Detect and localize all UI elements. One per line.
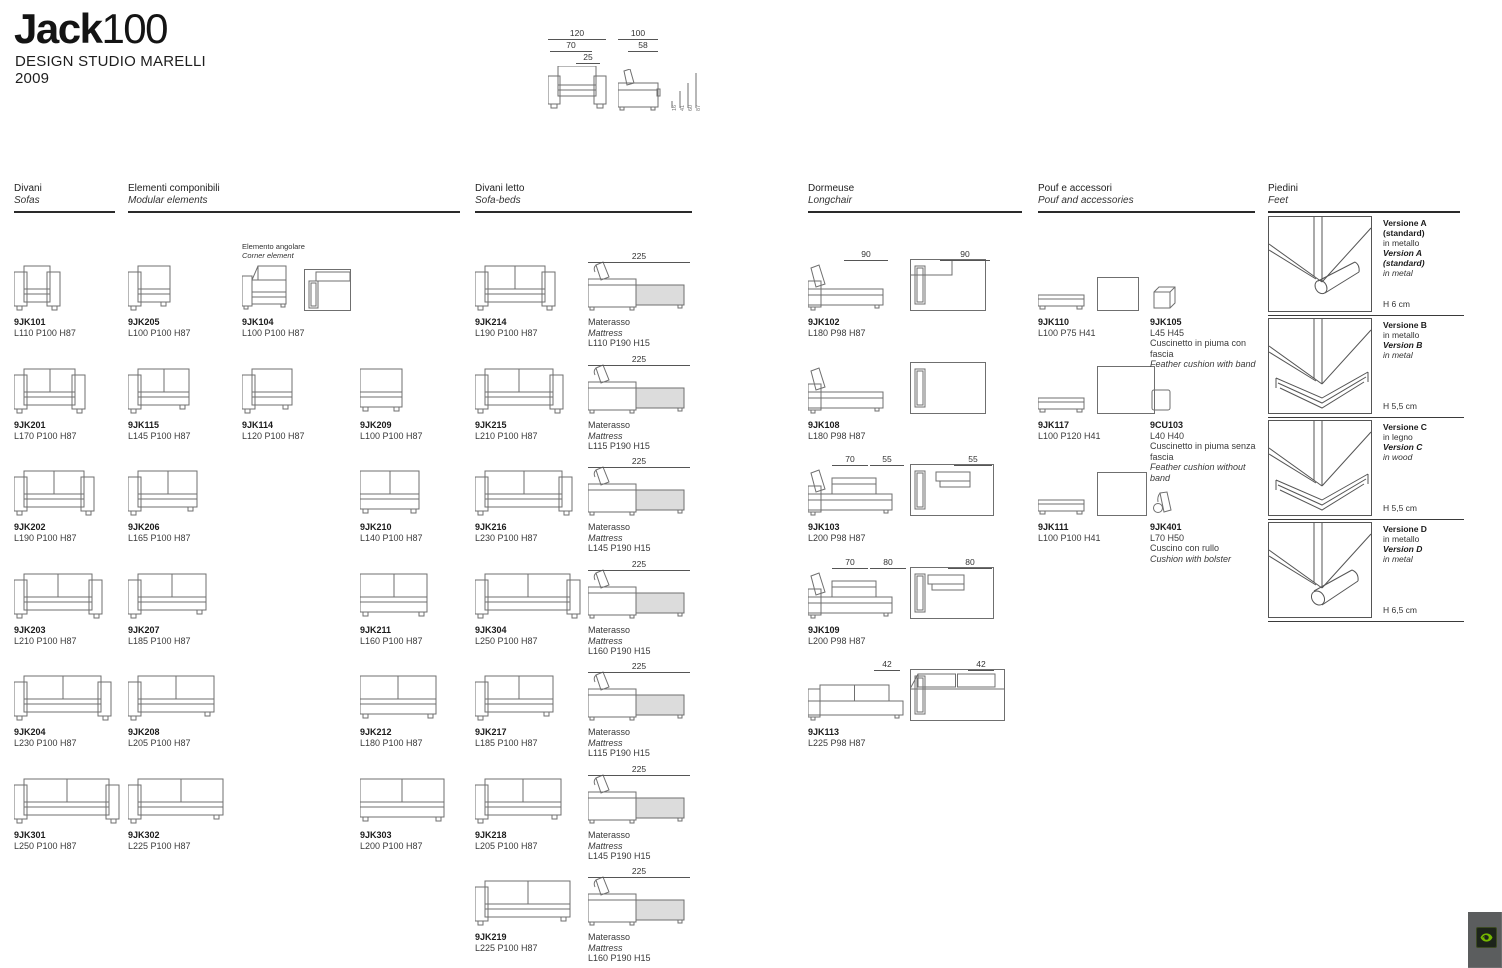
item-9JK206: 9JK206L165 P100 H87 xyxy=(128,442,238,543)
sofa-front-drawing xyxy=(242,367,293,414)
item-label: 9JK216L230 P100 H87 xyxy=(475,522,585,543)
item-label: 9JK301L250 P100 H87 xyxy=(14,830,124,851)
catalog-page: Jack100 DESIGN STUDIO MARELLI 2009 12070… xyxy=(0,0,1502,968)
dimension-line: 225 xyxy=(588,866,690,878)
longchair-drawing: 705555 xyxy=(808,442,1000,516)
item-dimensions: L210 P100 H87 xyxy=(475,431,585,442)
furniture-drawing xyxy=(360,545,470,619)
item-code: 9JK104 xyxy=(242,317,354,328)
dimension-line: 120 xyxy=(548,28,606,40)
item-code: 9JK103 xyxy=(808,522,1000,533)
item-label: 9JK110L100 P75 H41 xyxy=(1038,317,1150,338)
item-9JK301: 9JK301L250 P100 H87 xyxy=(14,750,124,851)
item-dimensions: L200 P98 H87 xyxy=(808,533,1000,544)
item-9JK101: 9JK101L110 P100 H87 xyxy=(14,237,124,338)
sofa-bed-drawing: 225 xyxy=(588,647,692,721)
sofa-front-drawing xyxy=(360,367,403,414)
longchair-drawing: 9090 xyxy=(808,237,1000,311)
furniture-drawing xyxy=(128,340,238,414)
mattress-9JK216: 225MaterassoMattressL145 P190 H15 xyxy=(588,442,692,554)
sofa-bed-drawing: 225 xyxy=(588,442,692,516)
dimension-line: 80 xyxy=(870,557,906,569)
item-9JK102: 90909JK102L180 P98 H87 xyxy=(808,237,1000,338)
dimension-line: 55 xyxy=(870,454,904,466)
corner-element-top-drawing xyxy=(304,269,352,311)
sofa-bed-open-drawing xyxy=(588,874,688,926)
item-dimensions: L170 P100 H87 xyxy=(14,431,124,442)
item-9JK214: 9JK214L190 P100 H87 xyxy=(475,237,585,338)
dimension-line: 225 xyxy=(588,251,690,263)
sofa-front-drawing xyxy=(14,264,61,311)
item-code: 9JK115 xyxy=(128,420,238,431)
sofa-front-drawing xyxy=(14,674,112,721)
dimension-line: 58 xyxy=(628,40,658,52)
item-9JK203: 9JK203L210 P100 H87 xyxy=(14,545,124,646)
item-9JK115: 9JK115L145 P100 H87 xyxy=(128,340,238,441)
dimension-line: 90 xyxy=(940,249,990,261)
item-dimensions: L110 P100 H87 xyxy=(14,328,124,339)
item-dimensions: L225 P98 H87 xyxy=(808,738,1000,749)
item-9JK208: 9JK208L205 P100 H87 xyxy=(128,647,238,748)
bolster-cushion-drawing xyxy=(1150,490,1176,516)
item-label: 9JK219L225 P100 H87 xyxy=(475,932,585,953)
furniture-drawing xyxy=(14,750,124,824)
item-label: 9JK109L200 P98 H87 xyxy=(808,625,1000,646)
item-9JK104: Elemento angolareCorner element9JK104L10… xyxy=(242,237,354,338)
item-9JK204: 9JK204L230 P100 H87 xyxy=(14,647,124,748)
item-dimensions: L230 P100 H87 xyxy=(475,533,585,544)
foot-version-row: Versione Bin metalloVersion Bin metalH 5… xyxy=(1268,315,1464,418)
foot-version-row: Versione Din metalloVersion Din metalH 6… xyxy=(1268,519,1464,622)
dimension-line: 225 xyxy=(588,764,690,776)
furniture-drawing xyxy=(128,237,238,311)
item-9JK209: 9JK209L100 P100 H87 xyxy=(360,340,470,441)
mattress-9JK214: 225MaterassoMattressL110 P190 H15 xyxy=(588,237,692,349)
item-9JK212: 9JK212L180 P100 H87 xyxy=(360,647,470,748)
item-label: 9JK208L205 P100 H87 xyxy=(128,727,238,748)
item-code: 9JK113 xyxy=(808,727,1000,738)
foot-version-label: Versione Cin legnoVersion Cin wood xyxy=(1383,422,1463,462)
cushion-cube-drawing xyxy=(1150,284,1178,311)
item-dimensions: L180 P98 H87 xyxy=(808,431,1000,442)
foot-version-drawing xyxy=(1268,522,1372,618)
item-label: 9JK210L140 P100 H87 xyxy=(360,522,470,543)
section-header-sofa-beds: Divani lettoSofa-beds xyxy=(475,183,692,213)
furniture-drawing xyxy=(242,340,354,414)
item-dimensions: L190 P100 H87 xyxy=(14,533,124,544)
item-label: 9JK218L205 P100 H87 xyxy=(475,830,585,851)
item-label: 9JK302L225 P100 H87 xyxy=(128,830,238,851)
item-9JK211: 9JK211L160 P100 H87 xyxy=(360,545,470,646)
item-label: 9JK115L145 P100 H87 xyxy=(128,420,238,441)
item-label: 9JK201L170 P100 H87 xyxy=(14,420,124,441)
longchair-top-drawing xyxy=(910,669,1005,721)
foot-version-drawing xyxy=(1268,216,1372,312)
item-label: 9JK103L200 P98 H87 xyxy=(808,522,1000,543)
furniture-drawing xyxy=(360,442,470,516)
pouf-top-drawing xyxy=(1097,366,1155,414)
sofa-front-drawing xyxy=(360,777,445,824)
svg-text:16: 16 xyxy=(672,105,678,111)
dimension-line: 225 xyxy=(588,661,690,673)
longchair-side-drawing xyxy=(808,261,885,311)
furniture-drawing xyxy=(14,442,124,516)
item-code: 9JK207 xyxy=(128,625,238,636)
item-9JK217: 9JK217L185 P100 H87 xyxy=(475,647,585,748)
item-code: 9JK208 xyxy=(128,727,238,738)
item-dimensions: L100 P100 H41 xyxy=(1038,533,1150,544)
furniture-drawing xyxy=(14,340,124,414)
item-9JK303: 9JK303L200 P100 H87 xyxy=(360,750,470,851)
item-9JK216: 9JK216L230 P100 H87 xyxy=(475,442,585,543)
item-code: 9JK203 xyxy=(14,625,124,636)
dimension-line: 225 xyxy=(588,456,690,468)
item-dimensions: L100 P100 H87 xyxy=(360,431,470,442)
furniture-drawing xyxy=(128,647,238,721)
sofa-front-drawing xyxy=(360,469,420,516)
item-code: 9JK216 xyxy=(475,522,585,533)
sofa-front-drawing xyxy=(475,367,564,414)
item-label: 9JK114L120 P100 H87 xyxy=(242,420,354,441)
sofa-front-drawing xyxy=(475,264,556,311)
dimension-line: 100 xyxy=(618,28,658,40)
sofa-front-drawing xyxy=(475,879,571,926)
item-dimensions: L225 P100 H87 xyxy=(128,841,238,852)
item-label: 9JK204L230 P100 H87 xyxy=(14,727,124,748)
pouf-top-drawing xyxy=(1097,277,1139,311)
item-9JK210: 9JK210L140 P100 H87 xyxy=(360,442,470,543)
dimension-line: 70 xyxy=(832,557,868,569)
svg-text:41: 41 xyxy=(680,105,686,111)
pouf-drawing xyxy=(1038,442,1150,516)
item-code: 9JK219 xyxy=(475,932,585,943)
longchair-drawing: 708080 xyxy=(808,545,1000,619)
item-dimensions: L120 P100 H87 xyxy=(242,431,354,442)
svg-text:60: 60 xyxy=(688,105,694,111)
sofa-front-drawing xyxy=(128,572,207,619)
item-dimensions: L250 P100 H87 xyxy=(14,841,124,852)
item-code: 9JK303 xyxy=(360,830,470,841)
mattress-label: MaterassoMattressL160 P190 H15 xyxy=(588,932,692,964)
sofa-front-drawing xyxy=(475,469,573,516)
longchair-drawing: 4242 xyxy=(808,647,1000,721)
item-9JK205: 9JK205L100 P100 H87 xyxy=(128,237,238,338)
item-label: 9JK202L190 P100 H87 xyxy=(14,522,124,543)
item-label: 9JK401L70 H50Cuscino con rulloCushion wi… xyxy=(1150,522,1260,564)
item-code: 9JK110 xyxy=(1038,317,1150,328)
sofa-front-drawing xyxy=(14,367,86,414)
item-label: 9JK111L100 P100 H41 xyxy=(1038,522,1150,543)
sofa-bed-open-drawing xyxy=(588,669,688,721)
sofa-front-drawing xyxy=(360,572,428,619)
section-header-feet: PiediniFeet xyxy=(1268,183,1460,213)
item-label: 9JK304L250 P100 H87 xyxy=(475,625,585,646)
designer-credit: DESIGN STUDIO MARELLI 2009 xyxy=(15,53,206,87)
furniture-drawing xyxy=(128,545,238,619)
longchair-top-drawing xyxy=(910,259,986,311)
item-label: 9JK203L210 P100 H87 xyxy=(14,625,124,646)
studio-name: DESIGN STUDIO MARELLI xyxy=(15,53,206,70)
item-9JK219: 9JK219L225 P100 H87 xyxy=(475,852,585,953)
foot-version-row: Versione A (standard)in metalloVersion A… xyxy=(1268,213,1464,316)
foot-version-label: Versione A (standard)in metalloVersion A… xyxy=(1383,218,1463,278)
furniture-drawing xyxy=(14,545,124,619)
item-label: 9JK214L190 P100 H87 xyxy=(475,317,585,338)
dimension-line: 42 xyxy=(874,659,900,671)
item-label: 9JK303L200 P100 H87 xyxy=(360,830,470,851)
longchair-side-drawing xyxy=(808,364,885,414)
pouf-drawing xyxy=(1038,340,1150,414)
item-code: 9JK201 xyxy=(14,420,124,431)
item-code: 9JK217 xyxy=(475,727,585,738)
dimension-line: 25 xyxy=(576,52,600,64)
page-title: Jack100 xyxy=(14,6,167,52)
longchair-top-drawing xyxy=(910,464,994,516)
item-dimensions: L185 P100 H87 xyxy=(128,636,238,647)
sofa-front-drawing xyxy=(360,674,437,721)
sofa-bed-open-drawing xyxy=(588,259,688,311)
foot-height: H 6,5 cm xyxy=(1383,605,1417,615)
item-dimensions: L200 P98 H87 xyxy=(808,636,1000,647)
sofa-bed-open-drawing xyxy=(588,464,688,516)
dimension-overview-drawing: 12070251005816416087 xyxy=(546,26,706,110)
item-code: 9JK214 xyxy=(475,317,585,328)
armchair-side-drawing xyxy=(618,69,661,113)
item-dimensions: L100 P100 H87 xyxy=(242,328,354,339)
item-dimensions: L145 P100 H87 xyxy=(128,431,238,442)
item-label: 9JK117L100 P120 H41 xyxy=(1038,420,1150,441)
item-9JK114: 9JK114L120 P100 H87 xyxy=(242,340,354,441)
furniture-drawing xyxy=(475,340,585,414)
item-dimensions: L200 P100 H87 xyxy=(360,841,470,852)
sofa-front-drawing xyxy=(128,264,171,311)
item-label: 9JK205L100 P100 H87 xyxy=(128,317,238,338)
item-code: 9JK108 xyxy=(808,420,1000,431)
foot-version-label: Versione Din metalloVersion Din metal xyxy=(1383,524,1463,564)
sofa-bed-open-drawing xyxy=(588,362,688,414)
item-9JK202: 9JK202L190 P100 H87 xyxy=(14,442,124,543)
furniture-drawing xyxy=(360,340,470,414)
dimension-line: 90 xyxy=(844,249,888,261)
foot-version-label: Versione Bin metalloVersion Bin metal xyxy=(1383,320,1463,360)
foot-height: H 5,5 cm xyxy=(1383,401,1417,411)
dimension-line: 225 xyxy=(588,354,690,366)
mattress-9JK218: 225MaterassoMattressL145 P190 H15 xyxy=(588,750,692,862)
furniture-drawing xyxy=(242,237,354,311)
title-light: 100 xyxy=(101,5,167,52)
mattress-9JK217: 225MaterassoMattressL115 P190 H15 xyxy=(588,647,692,759)
item-9JK218: 9JK218L205 P100 H87 xyxy=(475,750,585,851)
item-code: 9JK301 xyxy=(14,830,124,841)
dimension-line: 55 xyxy=(954,454,992,466)
item-code: 9JK206 xyxy=(128,522,238,533)
accessory-drawing xyxy=(1150,340,1260,414)
furniture-drawing xyxy=(475,545,585,619)
armchair-front-drawing xyxy=(548,66,607,110)
corner-element-front-drawing xyxy=(242,264,288,311)
dimension-line: 80 xyxy=(948,557,992,569)
item-label: 9JK209L100 P100 H87 xyxy=(360,420,470,441)
furniture-drawing xyxy=(475,750,585,824)
item-code: 9JK102 xyxy=(808,317,1000,328)
sofa-front-drawing xyxy=(128,674,215,721)
furniture-drawing xyxy=(475,442,585,516)
item-code: 9JK218 xyxy=(475,830,585,841)
furniture-drawing xyxy=(475,647,585,721)
item-code: 9JK212 xyxy=(360,727,470,738)
pouf-side-drawing xyxy=(1038,293,1085,311)
item-label: 9JK212L180 P100 H87 xyxy=(360,727,470,748)
item-label: 9JK102L180 P98 H87 xyxy=(808,317,1000,338)
item-9JK302: 9JK302L225 P100 H87 xyxy=(128,750,238,851)
sofa-front-drawing xyxy=(475,572,581,619)
section-header-sofas: DivaniSofas xyxy=(14,183,115,213)
furniture-drawing xyxy=(128,442,238,516)
item-9JK110: 9JK110L100 P75 H41 xyxy=(1038,237,1150,338)
sofa-bed-drawing: 225 xyxy=(588,852,692,926)
section-header-modular-elements: Elementi componibiliModular elements xyxy=(128,183,460,213)
item-dimensions: L100 P120 H41 xyxy=(1038,431,1150,442)
longchair-side-drawing xyxy=(808,671,905,721)
dimension-line: 70 xyxy=(832,454,868,466)
item-dimensions: L225 P100 H87 xyxy=(475,943,585,954)
item-dimensions: L140 P100 H87 xyxy=(360,533,470,544)
sofa-bed-open-drawing xyxy=(588,772,688,824)
item-dimensions: L190 P100 H87 xyxy=(475,328,585,339)
sofa-front-drawing xyxy=(128,469,198,516)
svg-text:87: 87 xyxy=(696,105,702,111)
item-label: 9JK215L210 P100 H87 xyxy=(475,420,585,441)
item-9JK201: 9JK201L170 P100 H87 xyxy=(14,340,124,441)
sofa-front-drawing xyxy=(475,777,562,824)
item-dimensions: L160 P100 H87 xyxy=(360,636,470,647)
pouf-drawing xyxy=(1038,237,1150,311)
accessory-drawing xyxy=(1150,442,1260,516)
item-code: 9JK215 xyxy=(475,420,585,431)
sofa-front-drawing xyxy=(14,777,120,824)
accessory-drawing xyxy=(1150,237,1260,311)
item-dimensions: L205 P100 H87 xyxy=(475,841,585,852)
dimension-line: 70 xyxy=(550,40,592,52)
item-code: 9JK114 xyxy=(242,420,354,431)
foot-height: H 5,5 cm xyxy=(1383,503,1417,513)
item-code: 9JK111 xyxy=(1038,522,1150,533)
furniture-drawing xyxy=(360,750,470,824)
item-9JK111: 9JK111L100 P100 H41 xyxy=(1038,442,1150,543)
mattress-9JK304: 225MaterassoMattressL160 P190 H15 xyxy=(588,545,692,657)
item-code: 9JK101 xyxy=(14,317,124,328)
item-code: 9JK202 xyxy=(14,522,124,533)
nvidia-overlay-icon[interactable] xyxy=(1476,927,1497,948)
item-dimensions: L230 P100 H87 xyxy=(14,738,124,749)
furniture-drawing xyxy=(360,647,470,721)
item-dimensions: L180 P98 H87 xyxy=(808,328,1000,339)
pouf-top-drawing xyxy=(1097,472,1147,516)
mattress-9JK219: 225MaterassoMattressL160 P190 H15 xyxy=(588,852,692,964)
item-9JK117: 9JK117L100 P120 H41 xyxy=(1038,340,1150,441)
pouf-side-drawing xyxy=(1038,396,1085,414)
item-code: 9JK204 xyxy=(14,727,124,738)
item-9JK108: 9JK108L180 P98 H87 xyxy=(808,340,1000,441)
longchair-drawing xyxy=(808,340,1000,414)
foot-height: H 6 cm xyxy=(1383,299,1410,309)
dimension-line: 42 xyxy=(968,659,994,671)
sofa-front-drawing xyxy=(128,367,190,414)
section-header-longchair: DormeuseLongchair xyxy=(808,183,1022,213)
item-9JK207: 9JK207L185 P100 H87 xyxy=(128,545,238,646)
furniture-drawing xyxy=(475,852,585,926)
item-code: 9JK109 xyxy=(808,625,1000,636)
item-label: 9JK108L180 P98 H87 xyxy=(808,420,1000,441)
overlay-panel xyxy=(1468,912,1502,968)
item-label: 9JK211L160 P100 H87 xyxy=(360,625,470,646)
item-9JK215: 9JK215L210 P100 H87 xyxy=(475,340,585,441)
sofa-front-drawing xyxy=(128,777,224,824)
item-9JK103: 7055559JK103L200 P98 H87 xyxy=(808,442,1000,543)
longchair-top-drawing xyxy=(910,362,986,414)
foot-version-row: Versione Cin legnoVersion Cin woodH 5,5 … xyxy=(1268,417,1464,520)
furniture-drawing xyxy=(14,237,124,311)
pouf-side-drawing xyxy=(1038,498,1085,516)
item-dimensions: L165 P100 H87 xyxy=(128,533,238,544)
sofa-front-drawing xyxy=(14,572,103,619)
sofa-bed-drawing: 225 xyxy=(588,237,692,311)
furniture-drawing xyxy=(14,647,124,721)
sofa-bed-drawing: 225 xyxy=(588,750,692,824)
item-label: 9JK206L165 P100 H87 xyxy=(128,522,238,543)
item-code: 9JK302 xyxy=(128,830,238,841)
item-9JK109: 7080809JK109L200 P98 H87 xyxy=(808,545,1000,646)
sofa-bed-drawing: 225 xyxy=(588,340,692,414)
item-label: 9JK104L100 P100 H87 xyxy=(242,317,354,338)
foot-version-drawing xyxy=(1268,420,1372,516)
item-label: 9JK101L110 P100 H87 xyxy=(14,317,124,338)
item-dimensions: L180 P100 H87 xyxy=(360,738,470,749)
item-label: 9JK207L185 P100 H87 xyxy=(128,625,238,646)
sofa-front-drawing xyxy=(14,469,95,516)
cushion-square-drawing xyxy=(1150,388,1174,414)
item-dimensions: L250 P100 H87 xyxy=(475,636,585,647)
item-code: 9JK304 xyxy=(475,625,585,636)
longchair-side-drawing xyxy=(808,569,894,619)
collection-year: 2009 xyxy=(15,70,49,87)
item-dimensions: L100 P75 H41 xyxy=(1038,328,1150,339)
sofa-bed-drawing: 225 xyxy=(588,545,692,619)
foot-version-drawing xyxy=(1268,318,1372,414)
title-bold: Jack xyxy=(14,5,101,52)
item-label: 9JK113L225 P98 H87 xyxy=(808,727,1000,748)
furniture-drawing xyxy=(475,237,585,311)
item-code: 9JK205 xyxy=(128,317,238,328)
dimension-line: 225 xyxy=(588,559,690,571)
item-9JK113: 42429JK113L225 P98 H87 xyxy=(808,647,1000,748)
longchair-side-drawing xyxy=(808,466,894,516)
height-ruler-drawing: 16416087 xyxy=(664,68,702,112)
item-dimensions: L210 P100 H87 xyxy=(14,636,124,647)
longchair-top-drawing xyxy=(910,567,994,619)
item-code: 9JK210 xyxy=(360,522,470,533)
item-dimensions: L100 P100 H87 xyxy=(128,328,238,339)
furniture-drawing xyxy=(128,750,238,824)
sofa-bed-open-drawing xyxy=(588,567,688,619)
mattress-9JK215: 225MaterassoMattressL115 P190 H15 xyxy=(588,340,692,452)
item-code: 9JK209 xyxy=(360,420,470,431)
item-9JK304: 9JK304L250 P100 H87 xyxy=(475,545,585,646)
section-header-pouf: Pouf e accessoriPouf and accessories xyxy=(1038,183,1255,213)
item-dimensions: L185 P100 H87 xyxy=(475,738,585,749)
item-9JK401: 9JK401L70 H50Cuscino con rulloCushion wi… xyxy=(1150,442,1260,564)
item-code: 9JK117 xyxy=(1038,420,1150,431)
